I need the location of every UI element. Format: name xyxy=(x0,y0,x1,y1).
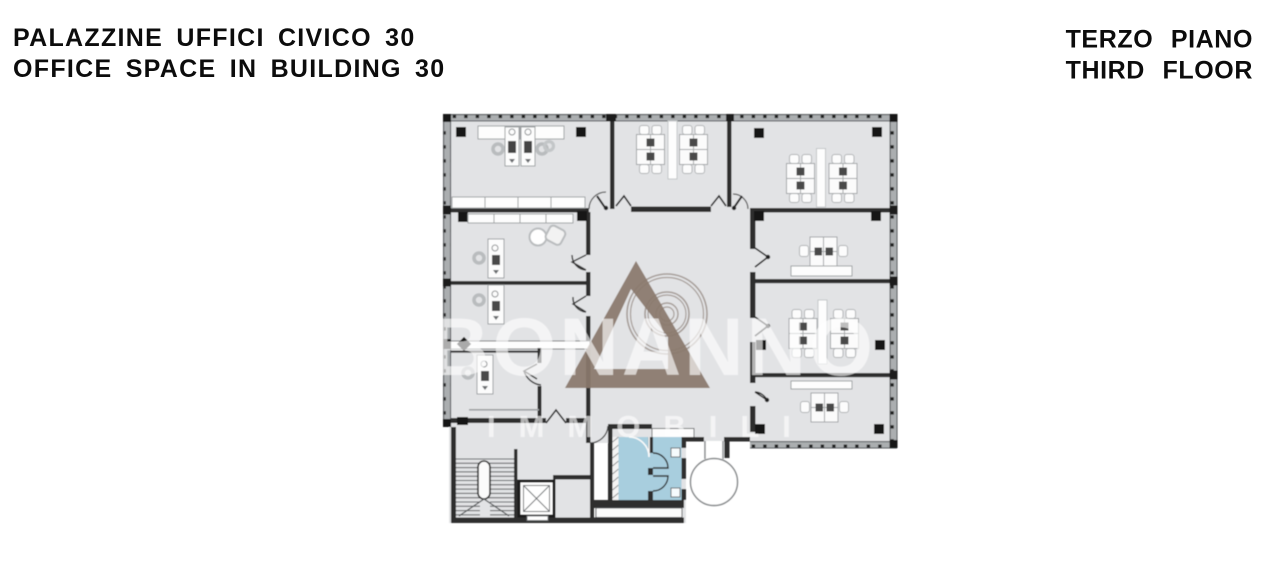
svg-text:THIRD FLOOR: THIRD FLOOR xyxy=(1066,57,1253,85)
svg-text:OFFICE SPACE IN BUILDING 30: OFFICE SPACE IN BUILDING 30 xyxy=(13,55,445,83)
svg-text:TERZO PIANO: TERZO PIANO xyxy=(1066,26,1253,54)
svg-text:IMMOBILI: IMMOBILI xyxy=(487,409,814,444)
svg-text:BONANNO: BONANNO xyxy=(430,302,876,393)
svg-text:PALAZZINE UFFICI CIVICO 30: PALAZZINE UFFICI CIVICO 30 xyxy=(13,24,416,52)
